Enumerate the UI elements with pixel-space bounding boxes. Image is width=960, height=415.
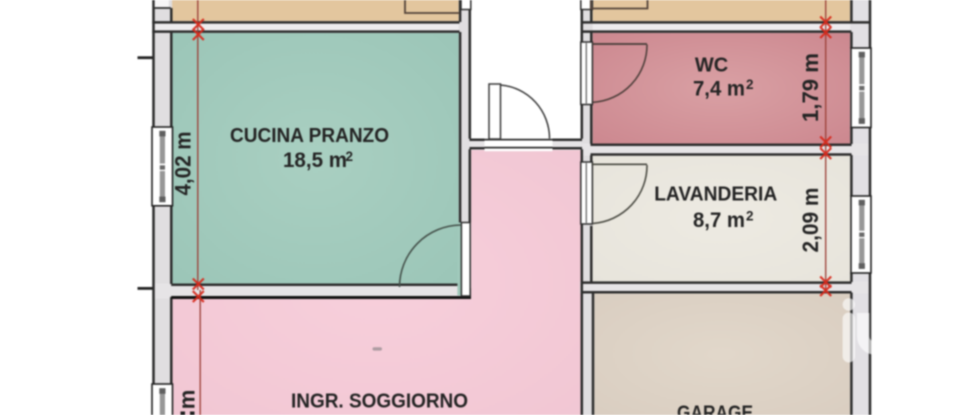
svg-text:LAVANDERIA: LAVANDERIA	[654, 184, 777, 206]
svg-text:2: 2	[346, 149, 354, 164]
svg-text:2: 2	[746, 77, 754, 92]
svg-text:WC: WC	[695, 55, 728, 77]
svg-text:INGR. SOGGIORNO: INGR. SOGGIORNO	[291, 391, 468, 413]
svg-text:4,02 m: 4,02 m	[170, 132, 195, 196]
svg-text:2,09 m: 2,09 m	[798, 188, 823, 253]
svg-text:18,5 m: 18,5 m	[283, 148, 347, 172]
svg-text:2: 2	[746, 209, 754, 224]
svg-text:7,4 m: 7,4 m	[693, 77, 745, 101]
svg-text:GARAGE: GARAGE	[677, 403, 753, 415]
svg-text:8,7 m: 8,7 m	[693, 208, 745, 232]
svg-text:1,79 m: 1,79 m	[798, 53, 823, 122]
svg-text:m: m	[175, 390, 200, 410]
svg-text:CUCINA PRANZO: CUCINA PRANZO	[230, 125, 389, 147]
